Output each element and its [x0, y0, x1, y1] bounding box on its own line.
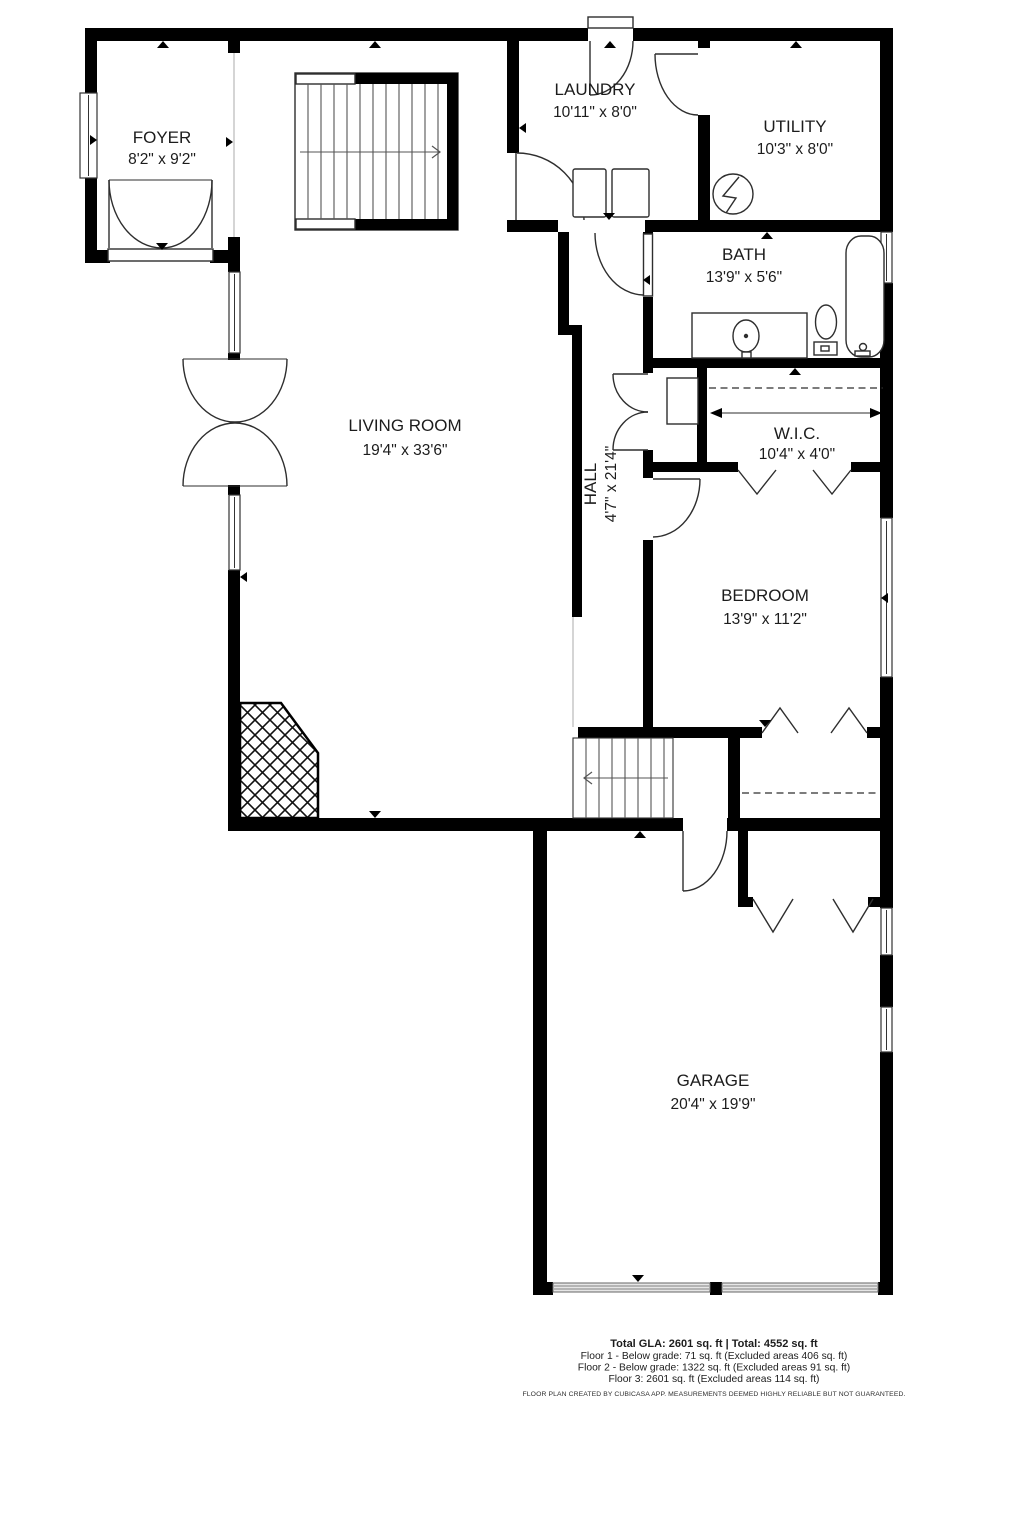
- room-dims-utility: 10'3" x 8'0": [757, 141, 833, 158]
- dryer-icon: [612, 169, 649, 217]
- footer-floor3: Floor 3: 2601 sq. ft (Excluded areas 114…: [608, 1374, 819, 1385]
- foyer-entry-threshold: [108, 249, 213, 261]
- room-label-living-room: LIVING ROOM: [348, 416, 461, 435]
- staircase-up-icon: [295, 73, 458, 230]
- room-label-foyer: FOYER: [133, 128, 192, 147]
- garage-door-icon: [553, 1283, 710, 1292]
- room-dims-hall: 4'7" x 21'4": [603, 446, 620, 522]
- washer-icon: [573, 169, 606, 217]
- sink-vanity-icon: [692, 313, 807, 358]
- garage-door-icon: [722, 1283, 878, 1292]
- window: [229, 272, 240, 353]
- floor-plan-page: FOYER 8'2" x 9'2" LAUNDRY 10'11" x 8'0" …: [0, 0, 1024, 1536]
- laundry-entry-threshold: [588, 17, 633, 28]
- room-label-wic: W.I.C.: [774, 424, 820, 443]
- window: [80, 93, 97, 178]
- room-label-laundry: LAUNDRY: [555, 80, 636, 99]
- room-dims-living-room: 19'4" x 33'6": [362, 442, 447, 459]
- staircase-down-icon: [573, 738, 673, 818]
- water-heater-icon: [713, 174, 753, 214]
- room-dims-wic: 10'4" x 4'0": [759, 446, 835, 463]
- bathtub-icon: [846, 236, 884, 357]
- hall-closet-cabinet-icon: [667, 378, 698, 424]
- footer-disclaimer: FLOOR PLAN CREATED BY CUBICASA APP. MEAS…: [523, 1391, 906, 1398]
- window: [881, 1007, 892, 1052]
- room-dims-foyer: 8'2" x 9'2": [128, 151, 196, 168]
- room-dims-laundry: 10'11" x 8'0": [553, 104, 637, 121]
- room-label-garage: GARAGE: [677, 1071, 750, 1090]
- room-label-bedroom: BEDROOM: [721, 586, 809, 605]
- room-label-bath: BATH: [722, 245, 766, 264]
- room-label-utility: UTILITY: [763, 117, 826, 136]
- room-label-hall: HALL: [581, 463, 600, 506]
- toilet-icon: [814, 305, 837, 355]
- room-dims-garage: 20'4" x 19'9": [670, 1096, 755, 1113]
- floor-plan-canvas: FOYER 8'2" x 9'2" LAUNDRY 10'11" x 8'0" …: [0, 0, 1024, 1536]
- footer-floor1: Floor 1 - Below grade: 71 sq. ft (Exclud…: [581, 1351, 848, 1362]
- window: [881, 908, 892, 955]
- footer-floor2: Floor 2 - Below grade: 1322 sq. ft (Excl…: [578, 1363, 850, 1374]
- room-dims-bedroom: 13'9" x 11'2": [723, 611, 807, 628]
- footer-total: Total GLA: 2601 sq. ft | Total: 4552 sq.…: [610, 1338, 818, 1350]
- window: [229, 495, 240, 570]
- room-dims-bath: 13'9" x 5'6": [706, 269, 782, 286]
